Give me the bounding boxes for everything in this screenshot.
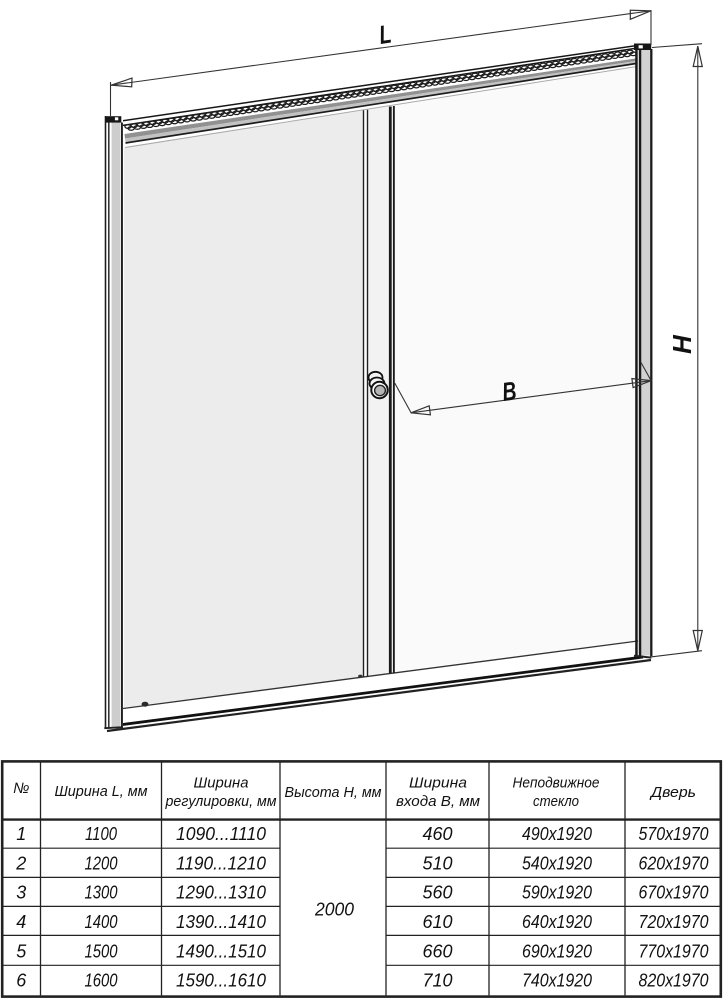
svg-text:770x1970: 770x1970 xyxy=(639,941,709,961)
svg-text:620x1970: 620x1970 xyxy=(639,853,709,873)
svg-text:6: 6 xyxy=(16,971,27,991)
svg-text:710: 710 xyxy=(423,971,453,991)
svg-text:Высота Н, мм: Высота Н, мм xyxy=(285,784,382,801)
svg-text:1300: 1300 xyxy=(85,883,118,903)
svg-text:5: 5 xyxy=(16,941,27,961)
svg-text:690x1920: 690x1920 xyxy=(522,941,592,961)
svg-text:стекло: стекло xyxy=(533,793,579,810)
svg-text:590x1920: 590x1920 xyxy=(522,883,592,903)
svg-text:1290...1310: 1290...1310 xyxy=(176,883,266,903)
svg-text:3: 3 xyxy=(16,883,26,903)
svg-text:Дверь: Дверь xyxy=(649,784,696,801)
svg-text:720x1970: 720x1970 xyxy=(639,912,709,932)
svg-text:Ширина: Ширина xyxy=(409,775,467,792)
svg-text:Неподвижное: Неподвижное xyxy=(513,775,600,792)
svg-text:490x1920: 490x1920 xyxy=(522,824,592,844)
svg-text:610: 610 xyxy=(423,912,453,932)
svg-text:510: 510 xyxy=(423,853,453,873)
svg-text:820x1970: 820x1970 xyxy=(639,971,709,991)
svg-text:1: 1 xyxy=(16,824,26,844)
svg-text:1500: 1500 xyxy=(85,941,118,961)
svg-text:740x1920: 740x1920 xyxy=(522,971,592,991)
svg-text:H: H xyxy=(667,334,697,354)
svg-text:Ширина L, мм: Ширина L, мм xyxy=(55,783,148,800)
svg-text:входа В, мм: входа В, мм xyxy=(396,793,480,810)
svg-text:4: 4 xyxy=(16,912,26,932)
svg-text:670x1970: 670x1970 xyxy=(639,883,709,903)
svg-text:1090...1110: 1090...1110 xyxy=(176,824,266,844)
svg-text:1100: 1100 xyxy=(85,824,117,844)
svg-text:570x1970: 570x1970 xyxy=(639,824,709,844)
svg-text:1590...1610: 1590...1610 xyxy=(176,971,266,991)
svg-text:660: 660 xyxy=(423,941,453,961)
svg-text:№: № xyxy=(13,780,29,797)
svg-text:1390...1410: 1390...1410 xyxy=(176,912,266,932)
svg-text:1400: 1400 xyxy=(85,912,118,932)
svg-text:540x1920: 540x1920 xyxy=(522,853,592,873)
svg-text:регулировки, мм: регулировки, мм xyxy=(165,793,277,810)
svg-text:560: 560 xyxy=(423,883,453,903)
svg-text:2000: 2000 xyxy=(314,900,354,920)
svg-text:1600: 1600 xyxy=(85,971,118,991)
svg-text:1490...1510: 1490...1510 xyxy=(176,941,266,961)
svg-text:Ширина: Ширина xyxy=(194,775,249,792)
svg-text:2: 2 xyxy=(15,853,26,873)
svg-text:640x1920: 640x1920 xyxy=(522,912,592,932)
svg-text:1190...1210: 1190...1210 xyxy=(176,853,266,873)
svg-text:460: 460 xyxy=(423,824,453,844)
svg-text:1200: 1200 xyxy=(85,853,118,873)
